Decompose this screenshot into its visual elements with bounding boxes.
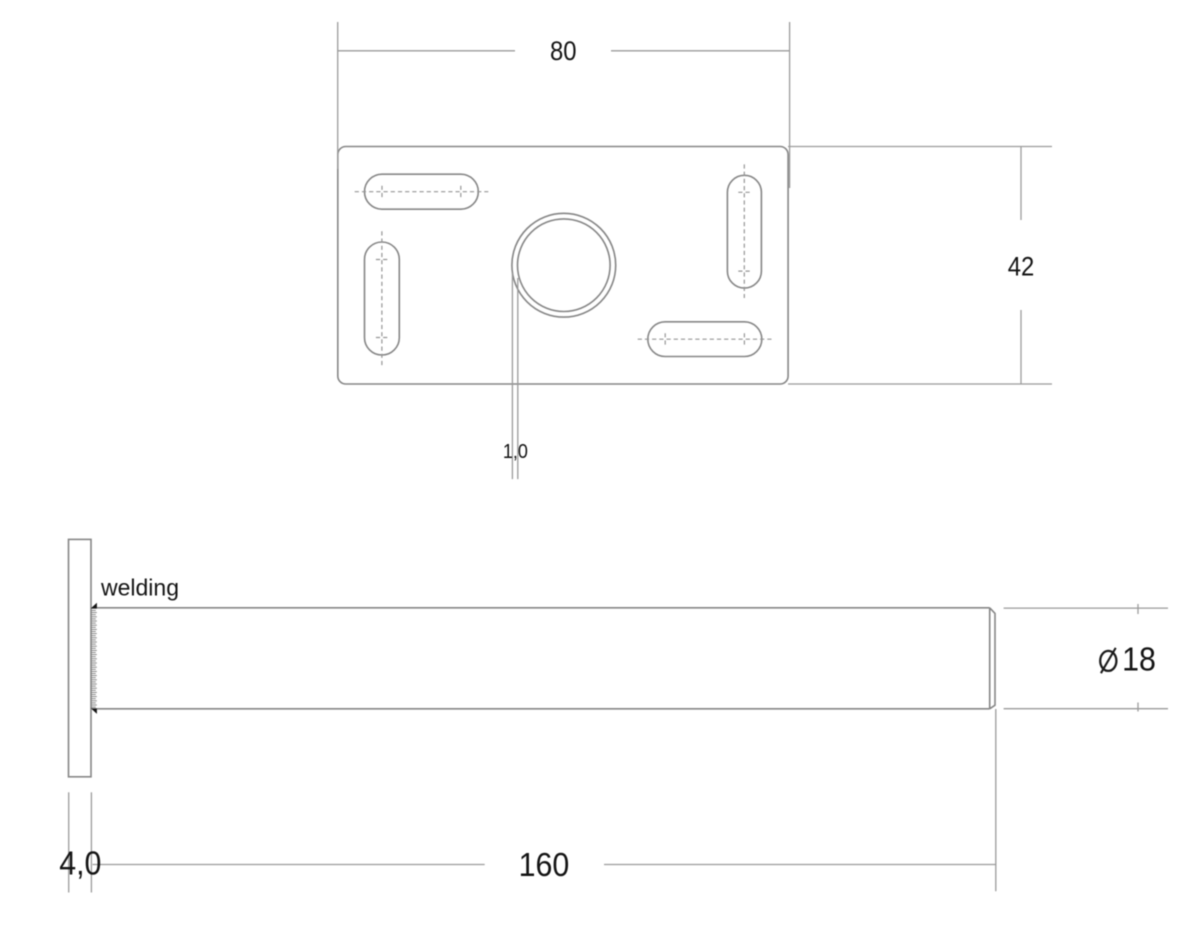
svg-text:80: 80 [550,37,577,66]
svg-text:160: 160 [519,846,570,883]
svg-text:welding: welding [100,575,179,601]
svg-text:1,0: 1,0 [503,441,528,463]
svg-text:4,0: 4,0 [59,844,101,881]
svg-text:18: 18 [1122,640,1156,677]
svg-text:42: 42 [1008,252,1035,281]
